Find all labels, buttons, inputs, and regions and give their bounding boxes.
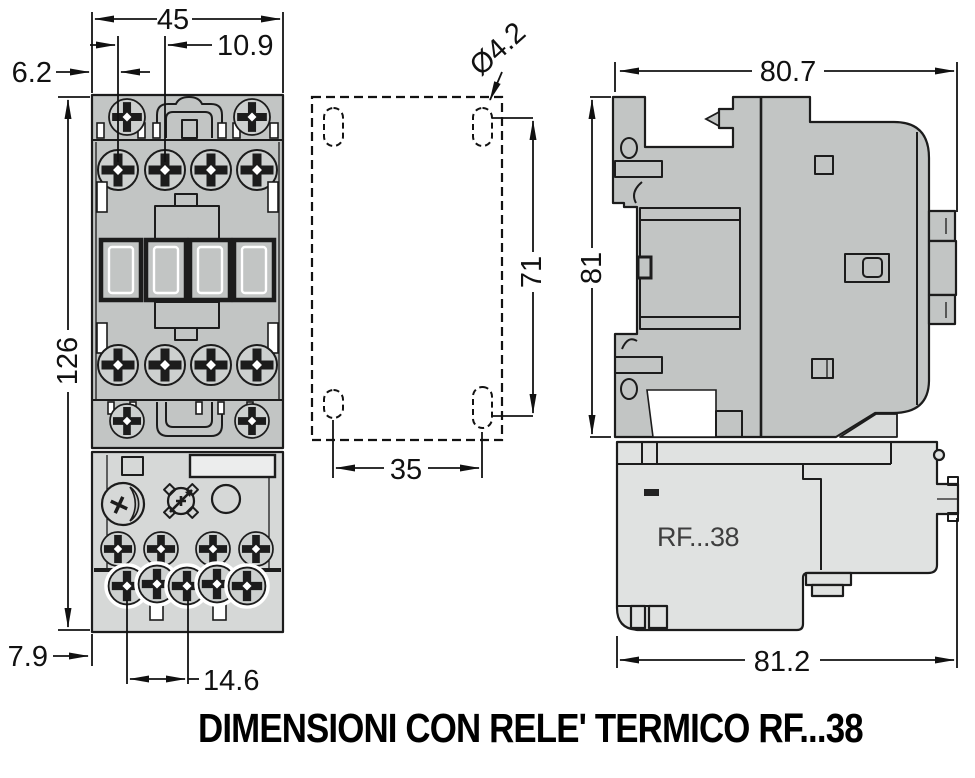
adjustment-dial-icon — [102, 483, 144, 525]
bottom-terminal-screws — [106, 563, 268, 607]
relay-model-label: RF...38 — [657, 522, 739, 552]
screw-icon — [144, 532, 178, 566]
side-view: RF...38 80.7 81 81.2 — [576, 56, 958, 678]
terminal-channel — [234, 240, 274, 300]
screw-icon — [191, 345, 231, 385]
mounting-slot — [473, 387, 492, 428]
screw-icon — [110, 404, 144, 438]
mounting-slot — [324, 390, 343, 418]
dim-screw-pitch-label: 10.9 — [217, 30, 273, 62]
dim-hole-diameter-label: Ø4.2 — [464, 16, 532, 82]
mounting-slot — [473, 108, 492, 146]
front-view: 45 10.9 6.2 126 7.9 14.6 — [8, 4, 283, 697]
screw-icon — [234, 99, 270, 135]
terminal-channel — [146, 240, 186, 300]
mounting-outline — [312, 97, 502, 440]
screw-icon — [235, 404, 269, 438]
screw-icon — [237, 345, 277, 385]
side-terminal — [929, 295, 955, 324]
relay-indicator — [644, 489, 659, 496]
dim-depth-top-label: 80.7 — [760, 56, 816, 88]
rating-window — [190, 455, 275, 477]
mounting-slot — [324, 108, 343, 146]
terminal-channel — [101, 240, 141, 300]
side-terminal — [929, 211, 955, 241]
screw-icon — [98, 345, 138, 385]
technical-drawing-page: 45 10.9 6.2 126 7.9 14.6 — [0, 0, 975, 778]
drilling-dimensions: Ø4.2 71 35 — [333, 16, 548, 486]
dim-horizontal-pitch-label: 35 — [390, 454, 422, 486]
side-terminal — [929, 241, 956, 295]
screw-icon — [196, 532, 230, 566]
drilling-plan: Ø4.2 71 35 — [312, 16, 548, 486]
dim-height-label: 81 — [576, 252, 608, 284]
drawing-canvas: 45 10.9 6.2 126 7.9 14.6 — [0, 0, 975, 778]
test-button-icon — [212, 485, 240, 513]
terminal-channel — [190, 240, 230, 300]
dim-overall-height-label: 126 — [52, 337, 84, 385]
dim-depth-bottom-label: 81.2 — [754, 646, 810, 678]
dim-vertical-pitch-label: 71 — [516, 256, 548, 288]
dim-terminal-pitch-label: 14.6 — [203, 665, 259, 697]
dim-edge-offset-label: 6.2 — [12, 57, 52, 89]
screw-icon — [191, 150, 231, 190]
dim-overall-width-label: 45 — [157, 4, 189, 36]
screw-icon — [239, 532, 273, 566]
caption: DIMENSIONI CON RELE' TERMICO RF...38 — [198, 706, 863, 751]
screw-icon — [101, 532, 135, 566]
screw-icon — [145, 345, 185, 385]
dim-foot-depth-label: 7.9 — [8, 641, 48, 673]
screw-icon — [109, 99, 145, 135]
